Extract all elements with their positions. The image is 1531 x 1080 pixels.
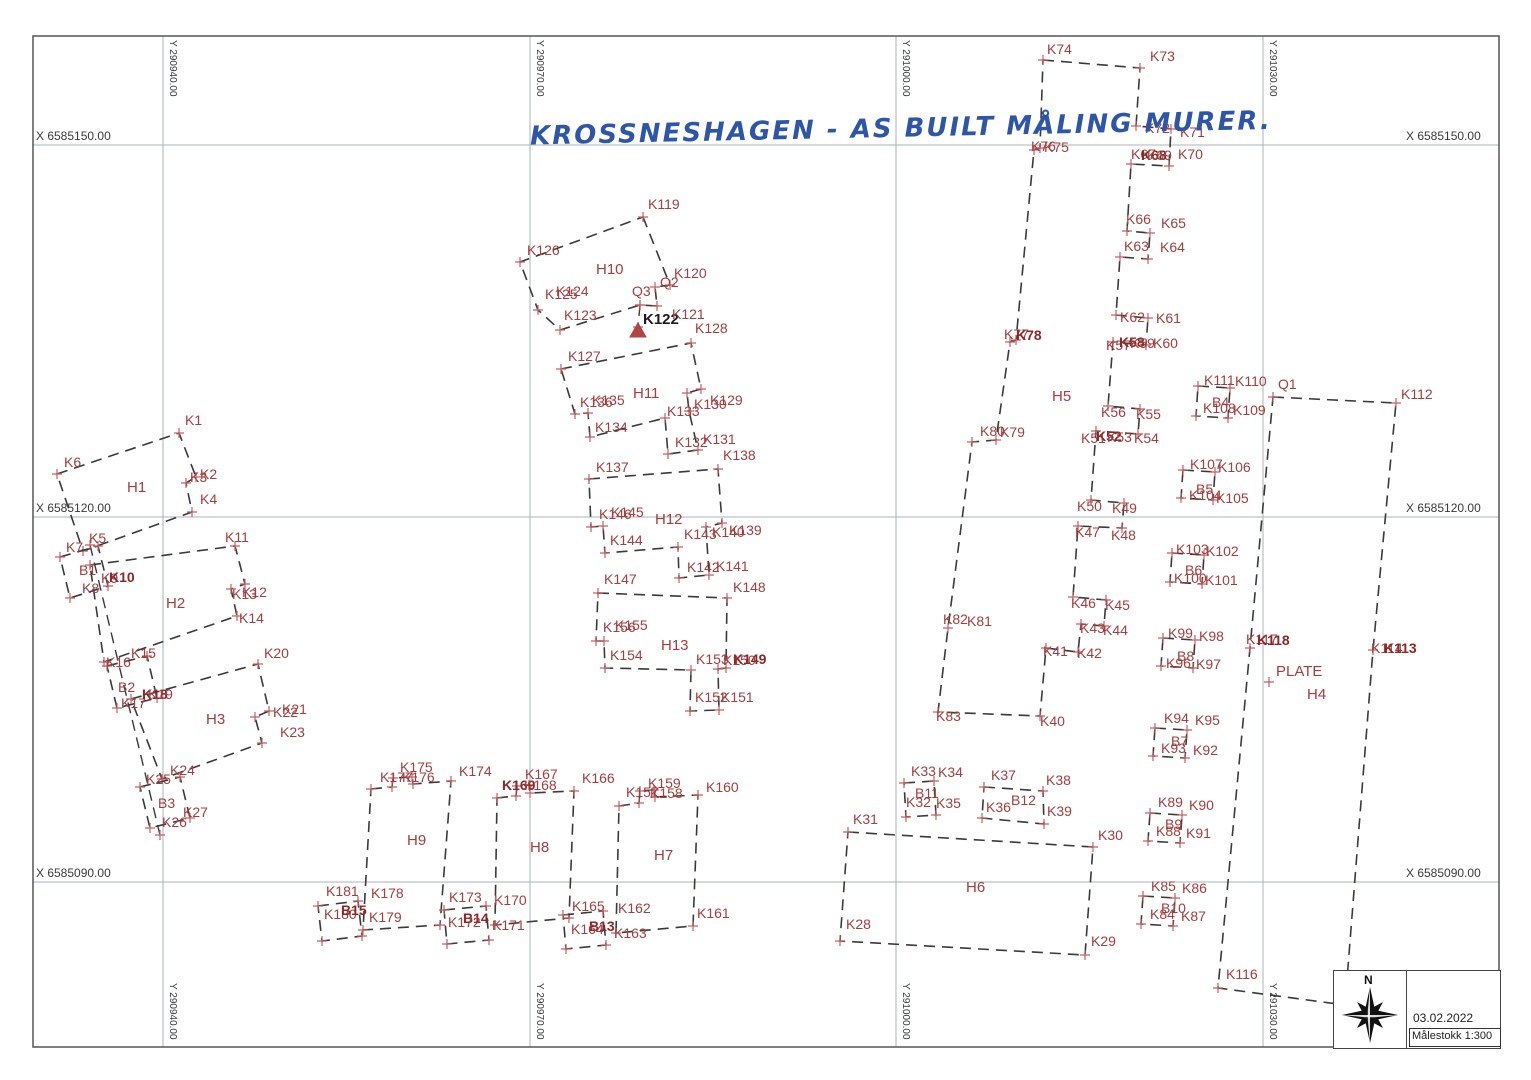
point-label-H13: H13	[661, 638, 689, 653]
point-label-H6: H6	[966, 880, 985, 895]
point-label-K44: K44	[1103, 623, 1128, 637]
vertex-cross	[1143, 254, 1153, 264]
point-label-K56: K56	[1101, 405, 1126, 419]
point-label-K33: K33	[911, 764, 936, 778]
point-label-K19: K19	[148, 687, 173, 701]
point-label-K172: K172	[448, 915, 481, 929]
point-label-H2: H2	[166, 596, 185, 611]
point-label-K112: K112	[1401, 387, 1433, 401]
point-label-K6: K6	[64, 455, 81, 469]
vertex-cross	[1193, 381, 1203, 391]
vertex-cross	[358, 925, 368, 935]
vertex-cross	[600, 548, 610, 558]
grid-label-y-bottom: Y 290940.00	[167, 983, 178, 1040]
point-label-K109: K109	[1233, 403, 1266, 417]
vertex-cross	[1143, 836, 1153, 846]
point-label-K164: K164	[571, 922, 604, 936]
point-label-K105: K105	[1216, 491, 1249, 505]
point-label-K31: K31	[853, 812, 878, 826]
point-label-H9: H9	[407, 833, 426, 848]
point-label-K48: K48	[1111, 528, 1136, 542]
vertex-cross	[899, 778, 909, 788]
point-label-B12: B12	[1011, 793, 1036, 807]
point-label-K158: K158	[650, 786, 683, 800]
point-label-K41: K41	[1043, 644, 1068, 658]
point-label-K10: K10	[109, 570, 135, 584]
vertex-cross	[515, 257, 525, 267]
point-label-PLATE: PLATE	[1276, 664, 1322, 679]
vertex-cross	[1191, 411, 1201, 421]
vertex-cross	[135, 782, 145, 792]
point-label-K37: K37	[991, 768, 1016, 782]
vertex-cross	[673, 542, 683, 552]
point-label-K70: K70	[1178, 147, 1203, 161]
point-label-K29: K29	[1091, 934, 1116, 948]
vertex-cross	[1156, 661, 1166, 671]
point-label-K28: K28	[846, 917, 871, 931]
vertex-cross	[586, 522, 596, 532]
point-label-K142: K142	[687, 560, 720, 574]
point-label-K135: K135	[592, 393, 625, 407]
point-label-K162: K162	[618, 901, 651, 915]
point-label-K165: K165	[572, 899, 605, 913]
vertex-cross	[366, 784, 376, 794]
grid-label-x-right: X 6585150.00	[1406, 129, 1481, 143]
point-label-K40: K40	[1040, 714, 1065, 728]
vertex-cross	[686, 665, 696, 675]
point-label-H7: H7	[654, 848, 673, 863]
point-label-K126: K126	[527, 243, 560, 257]
vertex-cross	[598, 521, 608, 531]
point-label-K61: K61	[1156, 311, 1181, 325]
vertex-cross	[682, 388, 692, 398]
point-label-K12: K12	[242, 585, 267, 599]
point-label-K90: K90	[1189, 798, 1214, 812]
point-label-K46: K46	[1071, 596, 1096, 610]
vertex-cross	[979, 782, 989, 792]
point-label-K113: K113	[1384, 641, 1417, 655]
point-label-K25: K25	[146, 772, 171, 786]
vertex-cross	[55, 552, 65, 562]
point-label-K64: K64	[1160, 240, 1185, 254]
point-label-K39: K39	[1047, 804, 1072, 818]
vertex-cross	[1145, 228, 1155, 238]
vertex-cross	[601, 940, 611, 950]
point-label-K83: K83	[936, 709, 961, 723]
point-label-K171: K171	[492, 918, 525, 932]
point-label-K100: K100	[1174, 571, 1207, 585]
point-label-K151: K151	[721, 690, 754, 704]
vertex-cross	[1148, 751, 1158, 761]
point-label-K73: K73	[1150, 49, 1175, 63]
point-label-K163: K163	[614, 926, 647, 940]
point-label-K134: K134	[595, 420, 628, 434]
vertex-cross	[693, 790, 703, 800]
grid-label-y-top: Y 291030.00	[1267, 40, 1278, 97]
point-label-K118: K118	[1257, 633, 1290, 647]
point-label-K166: K166	[582, 771, 615, 785]
point-label-K96: K96	[1166, 656, 1191, 670]
point-label-K149: K149	[733, 652, 766, 666]
grid-label-x-left: X 6585150.00	[36, 129, 111, 143]
vertex-cross	[901, 812, 911, 822]
point-label-K14: K14	[239, 611, 264, 625]
point-label-K154: K154	[610, 648, 643, 662]
vertex-cross	[435, 920, 445, 930]
point-label-K66: K66	[1126, 212, 1151, 226]
vertex-cross	[635, 300, 645, 310]
point-label-K88: K88	[1156, 824, 1181, 838]
point-label-K69: K69	[1147, 148, 1172, 162]
point-label-K32: K32	[906, 795, 931, 809]
point-label-K4: K4	[200, 492, 217, 506]
vertex-cross	[556, 364, 566, 374]
building-outline-H9	[363, 777, 451, 930]
grid-label-x-left: X 6585090.00	[36, 866, 111, 880]
point-label-K160: K160	[706, 780, 739, 794]
vertex-cross	[1145, 808, 1155, 818]
point-label-K141: K141	[716, 559, 749, 573]
point-label-K106: K106	[1218, 460, 1251, 474]
vertex-cross	[492, 793, 502, 803]
point-label-K81: K81	[967, 614, 992, 628]
survey-drawing-sheet: K1K6H1K3K2K4K5K7B1K8K9K10K11H2K13K12K14K…	[0, 0, 1531, 1080]
point-label-K24: K24	[170, 763, 195, 777]
vertex-cross	[1150, 723, 1160, 733]
vertex-cross	[1080, 950, 1090, 960]
point-label-K74: K74	[1047, 42, 1072, 56]
vertex-cross	[446, 776, 456, 786]
point-label-K120: K120	[674, 266, 707, 280]
point-label-K49: K49	[1112, 501, 1137, 515]
vertex-cross	[585, 432, 595, 442]
point-label-K137: K137	[596, 460, 629, 474]
point-label-K15: K15	[131, 646, 156, 660]
vertex-cross	[145, 823, 155, 833]
title-block-divider	[1406, 971, 1407, 1048]
vertex-cross	[686, 338, 696, 348]
point-label-K86: K86	[1182, 881, 1207, 895]
point-label-K139: K139	[729, 523, 762, 537]
grid-label-x-right: X 6585090.00	[1406, 866, 1481, 880]
point-label-K127: K127	[568, 349, 601, 363]
point-label-K94: K94	[1164, 711, 1189, 725]
point-label-K108: K108	[1203, 401, 1236, 415]
vertex-cross	[663, 449, 673, 459]
date-value: 03.02.2022	[1413, 1011, 1473, 1025]
vertex-cross	[1176, 493, 1186, 503]
vertex-cross	[1168, 921, 1178, 931]
vertex-cross	[1122, 226, 1132, 236]
point-label-K21: K21	[282, 702, 307, 716]
drawing-frame	[33, 36, 1499, 1047]
vertex-cross	[1268, 392, 1278, 402]
vertex-cross	[313, 901, 323, 911]
point-label-K34: K34	[938, 765, 963, 779]
point-label-B1: B1	[79, 563, 96, 577]
point-label-K119: K119	[648, 197, 680, 211]
point-label-K178: K178	[371, 886, 404, 900]
vertex-cross	[250, 712, 260, 722]
vertex-cross	[174, 428, 184, 438]
point-label-K176: K176	[402, 770, 435, 784]
vertex-cross	[638, 212, 648, 222]
point-label-K170: K170	[494, 893, 527, 907]
point-label-K27: K27	[183, 805, 208, 819]
point-label-K36: K36	[986, 800, 1011, 814]
vertex-cross	[584, 474, 594, 484]
point-label-K116: K116	[1226, 967, 1258, 981]
grid-label-y-top: Y 291000.00	[900, 40, 911, 97]
point-label-B2: B2	[118, 680, 135, 694]
point-label-K1: K1	[185, 413, 202, 427]
grid-label-y-top: Y 290940.00	[167, 40, 178, 97]
vertex-cross	[317, 936, 327, 946]
vertex-cross	[714, 705, 724, 715]
point-label-K101: K101	[1205, 573, 1238, 587]
vertex-cross	[696, 384, 706, 394]
vertex-cross	[357, 931, 367, 941]
grid-label-x-left: X 6585120.00	[36, 501, 111, 515]
point-label-K65: K65	[1161, 216, 1186, 230]
point-label-K91: K91	[1186, 826, 1211, 840]
point-label-K148: K148	[733, 580, 766, 594]
point-label-K173: K173	[449, 890, 482, 904]
vertex-cross	[484, 935, 494, 945]
point-label-K30: K30	[1098, 828, 1123, 842]
point-label-K129: K129	[710, 393, 743, 407]
point-label-K53: K53	[1107, 430, 1132, 444]
point-label-K20: K20	[264, 646, 289, 660]
vertex-cross	[931, 810, 941, 820]
vertex-cross	[1135, 63, 1145, 73]
point-label-K11: K11	[225, 530, 249, 544]
point-label-K128: K128	[695, 321, 728, 335]
point-label-K85: K85	[1151, 879, 1176, 893]
point-label-K38: K38	[1046, 773, 1071, 787]
point-label-K16: K16	[106, 655, 131, 669]
point-label-K62: K62	[1120, 310, 1145, 324]
point-label-K45: K45	[1105, 598, 1130, 612]
vertex-cross	[843, 827, 853, 837]
point-label-K124: K124	[556, 284, 589, 298]
point-label-K161: K161	[697, 906, 730, 920]
point-label-B15: B15	[341, 903, 367, 917]
point-label-K145: K145	[611, 505, 644, 519]
vertex-cross	[570, 409, 580, 419]
vertex-cross	[685, 706, 695, 716]
point-label-H8: H8	[530, 840, 549, 855]
vertex-cross	[1175, 838, 1185, 848]
vertex-cross	[253, 659, 263, 669]
point-label-K54: K54	[1134, 431, 1159, 445]
point-label-K87: K87	[1181, 909, 1206, 923]
vertex-cross	[1391, 398, 1401, 408]
point-label-K23: K23	[280, 725, 305, 739]
grid-label-y-bottom: Y 291030.00	[1267, 983, 1278, 1040]
point-label-K79: K79	[1000, 425, 1025, 439]
vertex-cross	[442, 939, 452, 949]
point-label-K110: K110	[1235, 374, 1267, 388]
vertex-cross	[600, 663, 610, 673]
point-label-H5: H5	[1052, 389, 1071, 404]
title-block: N 03.02.2022 Målestokk 1:300	[1333, 970, 1501, 1049]
point-label-K111: K111	[1204, 373, 1235, 387]
point-label-K93: K93	[1161, 741, 1186, 755]
vertex-cross	[688, 921, 698, 931]
vertex-cross	[835, 936, 845, 946]
point-label-K147: K147	[604, 572, 637, 586]
point-label-K174: K174	[459, 764, 492, 778]
point-label-K78: K78	[1016, 328, 1042, 342]
point-label-K47: K47	[1075, 525, 1100, 539]
point-label-K98: K98	[1199, 629, 1224, 643]
point-label-H11: H11	[633, 386, 659, 401]
vertex-cross	[1178, 465, 1188, 475]
vertex-cross	[257, 738, 267, 748]
point-label-K2: K2	[200, 467, 217, 481]
point-label-H10: H10	[596, 262, 624, 277]
vertex-cross	[591, 636, 601, 646]
point-label-K181: K181	[326, 884, 359, 898]
point-label-K123: K123	[564, 308, 597, 322]
north-arrow-icon	[1338, 983, 1402, 1047]
point-label-K59: K59	[1130, 336, 1155, 350]
point-label-K131: K131	[703, 432, 736, 446]
point-label-K92: K92	[1193, 743, 1218, 757]
point-label-K84: K84	[1150, 907, 1175, 921]
point-label-K95: K95	[1195, 713, 1220, 727]
point-label-K138: K138	[723, 448, 756, 462]
vertex-cross	[569, 786, 579, 796]
point-label-K82: K82	[943, 612, 968, 626]
point-label-B3: B3	[158, 796, 175, 810]
vertex-cross	[652, 301, 662, 311]
vertex-cross	[722, 593, 732, 603]
point-label-K75: K75	[1044, 140, 1069, 154]
point-label-Q1: Q1	[1278, 377, 1297, 391]
vertex-cross	[1158, 633, 1168, 643]
vertex-cross	[555, 325, 565, 335]
point-label-K97: K97	[1196, 657, 1221, 671]
grid-label-x-right: X 6585120.00	[1406, 501, 1481, 515]
point-label-K179: K179	[369, 910, 402, 924]
point-label-H4: H4	[1307, 687, 1326, 702]
point-label-K43: K43	[1080, 621, 1105, 635]
grid-label-y-bottom: Y 290970.00	[534, 983, 545, 1040]
point-label-K102: K102	[1206, 544, 1239, 558]
vertex-cross	[614, 801, 624, 811]
scale-value: Målestokk 1:300	[1409, 1028, 1501, 1047]
point-label-Q3: Q3	[632, 284, 651, 298]
vertex-cross	[1136, 919, 1146, 929]
vertex-cross	[1088, 842, 1098, 852]
vertex-cross	[593, 588, 603, 598]
vertex-cross	[713, 464, 723, 474]
point-label-K55: K55	[1136, 407, 1161, 421]
point-label-K35: K35	[936, 796, 961, 810]
point-label-K42: K42	[1077, 646, 1102, 660]
vertex-cross	[1138, 891, 1148, 901]
vertex-cross	[561, 944, 571, 954]
vertex-cross	[1264, 677, 1274, 687]
point-label-K50: K50	[1077, 499, 1102, 513]
grid-label-y-bottom: Y 291000.00	[900, 983, 911, 1040]
point-label-K5: K5	[89, 531, 106, 545]
building-outline-H3	[131, 664, 269, 779]
point-label-H3: H3	[206, 712, 225, 727]
point-label-K155: K155	[615, 618, 648, 632]
vertex-cross	[1039, 819, 1049, 829]
vertex-cross	[65, 593, 75, 603]
point-label-K103: K103	[1176, 542, 1209, 556]
point-label-K144: K144	[610, 533, 643, 547]
point-label-H12: H12	[655, 512, 683, 527]
vertex-cross	[650, 282, 660, 292]
point-label-K60: K60	[1153, 336, 1178, 350]
point-label-K168: K168	[524, 778, 557, 792]
point-label-K89: K89	[1158, 795, 1183, 809]
vertex-cross	[1213, 983, 1223, 993]
point-label-K99: K99	[1168, 626, 1193, 640]
point-label-K63: K63	[1124, 239, 1149, 253]
point-label-H1: H1	[127, 480, 146, 495]
vertex-cross	[533, 305, 543, 315]
vertex-cross	[674, 573, 684, 583]
grid-label-y-top: Y 290970.00	[534, 40, 545, 97]
point-label-K7: K7	[66, 540, 83, 554]
point-label-K121: K121	[672, 307, 705, 321]
vertex-cross	[967, 437, 977, 447]
point-label-K8: K8	[82, 581, 99, 595]
vertex-cross	[52, 469, 62, 479]
vertex-cross	[187, 507, 197, 517]
